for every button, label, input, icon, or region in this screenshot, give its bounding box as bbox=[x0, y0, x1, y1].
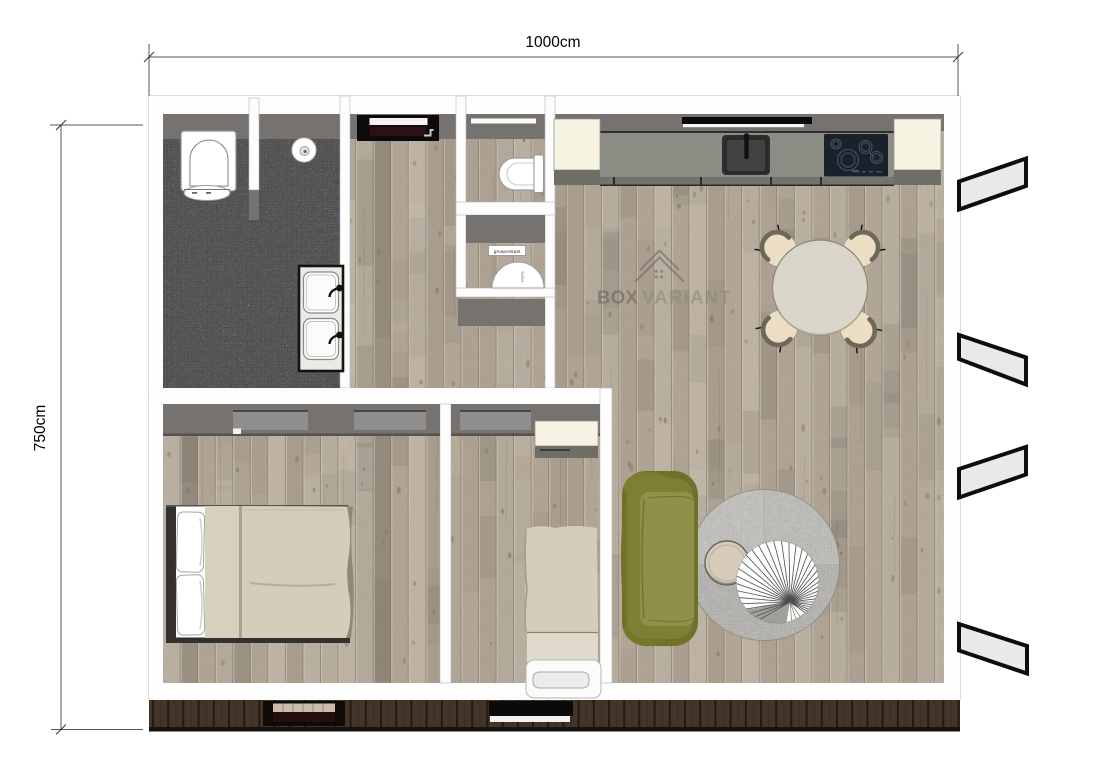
svg-text:boiler: boiler bbox=[520, 271, 525, 283]
svg-text:1000cm: 1000cm bbox=[525, 34, 580, 51]
svg-text:VARIANT: VARIANT bbox=[642, 287, 732, 308]
svg-text:750cm: 750cm bbox=[32, 405, 49, 452]
svg-text:groepenkast: groepenkast bbox=[494, 249, 521, 255]
svg-text:BOX: BOX bbox=[597, 287, 639, 308]
